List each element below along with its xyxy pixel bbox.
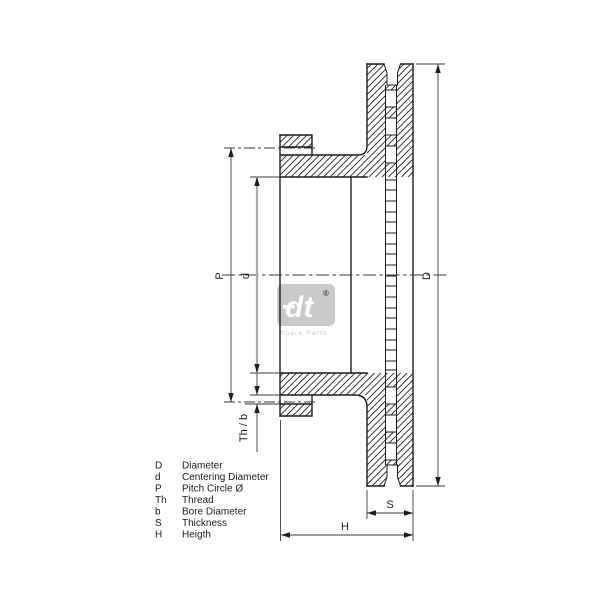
- dimension-Th-b: [245, 373, 280, 452]
- legend: D Diameter d Centering Diameter P Pitch …: [155, 461, 269, 541]
- legend-desc-d: Centering Diameter: [182, 472, 269, 483]
- legend-desc-H: Heigth: [182, 530, 211, 541]
- legend-key-S: S: [155, 518, 162, 529]
- legend-desc-D: Diameter: [182, 461, 223, 472]
- legend-key-D: D: [155, 461, 162, 472]
- legend-key-H: H: [155, 530, 162, 541]
- legend-desc-P: Pitch Circle Ø: [182, 484, 243, 495]
- logo-caption: Spare Parts: [280, 330, 328, 337]
- dimension-label-P: P: [214, 272, 226, 279]
- legend-key-d: d: [155, 472, 161, 483]
- technical-drawing-page: dt ® Spare Parts: [0, 0, 600, 600]
- dimension-label-H: H: [341, 521, 349, 533]
- logo-dash: [283, 305, 295, 309]
- legend-desc-Th: Thread: [182, 495, 214, 506]
- watermark-logo: dt ® Spare Parts: [277, 284, 335, 337]
- dimension-label-Th-b: Th / b: [238, 414, 250, 442]
- dimension-label-D: D: [421, 272, 433, 280]
- dimension-label-d: d: [240, 273, 252, 279]
- dimension-label-S: S: [386, 499, 393, 511]
- legend-desc-S: Thickness: [182, 518, 227, 529]
- legend-desc-b: Bore Diameter: [182, 507, 247, 518]
- legend-key-P: P: [155, 484, 162, 495]
- logo-registered-mark: ®: [323, 289, 329, 298]
- legend-key-b: b: [155, 507, 161, 518]
- legend-key-Th: Th: [155, 495, 167, 506]
- brake-disc-technical-drawing: dt ® Spare Parts: [0, 0, 600, 600]
